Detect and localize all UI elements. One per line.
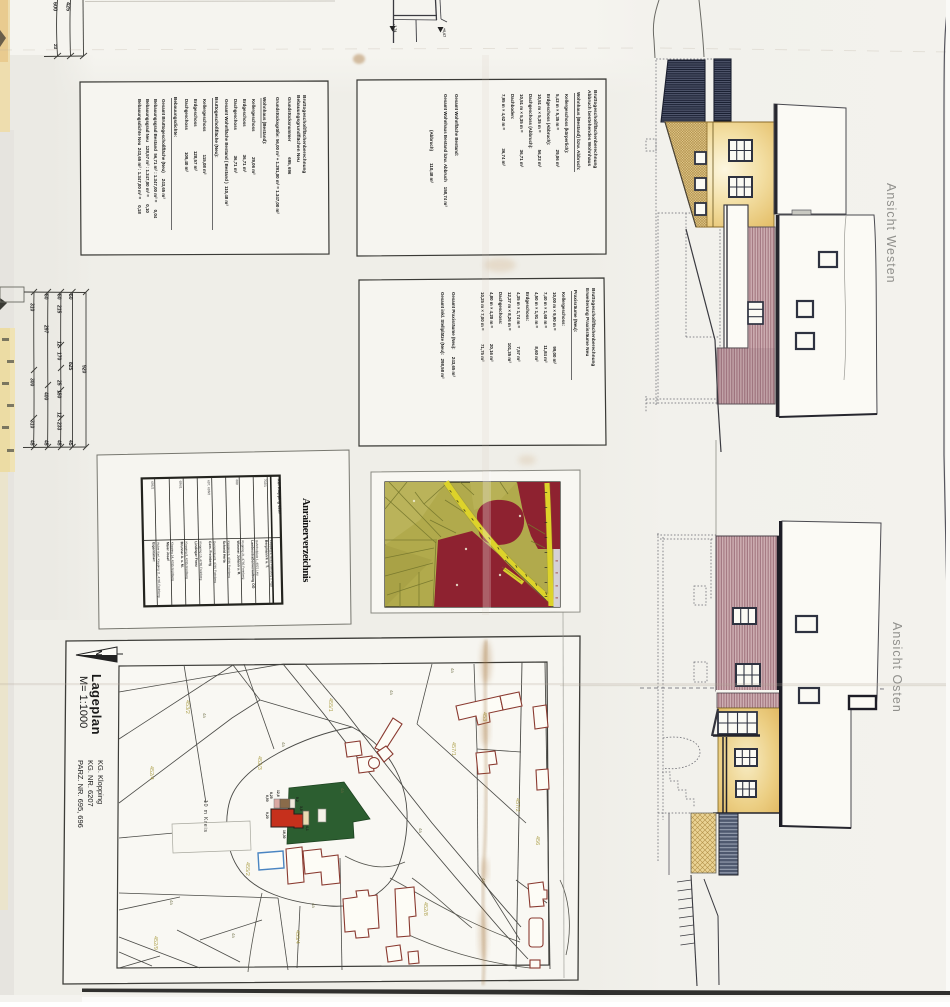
svg-text:297: 297 <box>43 325 49 334</box>
svg-text:455/4: 455/4 <box>294 930 300 944</box>
svg-text:Maier Josef: Maier Josef <box>166 542 170 562</box>
svg-text:Wohnhaus (Bestand) bzw. Abbruc: Wohnhaus (Bestand) bzw. Abbruch: <box>576 92 581 171</box>
svg-text:12: 12 <box>56 341 62 347</box>
svg-text:Dachgeschoss:: Dachgeschoss: <box>498 292 503 325</box>
svg-text:Kellergeschoss (körperlich):: Kellergeschoss (körperlich): <box>564 94 569 154</box>
svg-text:Klopping 21, 4785 Freinberg: Klopping 21, 4785 Freinberg <box>241 540 246 579</box>
svg-text:Klopping 8, 4785 Freinberg: Klopping 8, 4785 Freinberg <box>227 541 232 579</box>
svg-text:KG. NR. 6207: KG. NR. 6207 <box>86 760 95 807</box>
svg-text:Klopping 14, 4785 Freinberg: Klopping 14, 4785 Freinberg <box>170 542 175 581</box>
svg-text:699: 699 <box>235 479 239 485</box>
svg-text:25: 25 <box>56 380 62 386</box>
svg-text:Erdgeschoss:: Erdgeschoss: <box>525 292 530 322</box>
svg-text:Abbruch bestehendes Wohnhaus: Abbruch bestehendes Wohnhaus <box>586 90 592 166</box>
svg-text:452/4: 452/4 <box>148 766 154 780</box>
svg-text:12: 12 <box>56 412 62 418</box>
svg-text:Wimmer Johann u. R.: Wimmer Johann u. R. <box>236 540 241 575</box>
svg-text:Kellergeschoss:: Kellergeschoss: <box>561 292 566 326</box>
svg-text:696/1: 696/1 <box>178 481 182 489</box>
svg-text:Bebauungsgrad Bestand 56,71 m: Bebauungsgrad Bestand 56,71 m² : 1.347,0… <box>153 99 158 219</box>
svg-text:Kellergeschoss: Kellergeschoss 29,06 m² <box>251 99 256 175</box>
svg-text:50: 50 <box>56 294 62 300</box>
svg-text:Bebauungsgrad Neu 128,57 m²: Bebauungsgrad Neu 128,57 m² : 1.347,00 m… <box>145 99 150 213</box>
svg-text:5,43 m × 5,35 m =: 5,43 m × 5,35 m = 29,06 m² <box>555 94 560 168</box>
svg-text:4a: 4a <box>202 713 207 718</box>
svg-text:50: 50 <box>43 294 49 300</box>
svg-text:Brunner A. u. M.: Brunner A. u. M. <box>180 542 185 568</box>
svg-text:Klopping 9, 4785 Freinberg: Klopping 9, 4785 Freinberg <box>184 541 189 579</box>
svg-text:455/1: 455/1 <box>327 698 333 712</box>
svg-text:Bruttogeschoßflächenberechnung: Bruttogeschoßflächenberechnung <box>592 90 598 168</box>
svg-text:9,20: 9,20 <box>265 812 269 819</box>
svg-text:Grundstücksnummer: Grundstücksnummer 695, 696 <box>287 97 292 175</box>
svg-text:7,40 m × 1,60 m =: 7,40 m × 1,60 m = 11,84 m² <box>543 292 548 363</box>
svg-text:KG. Klopping 6207: KG. Klopping 6207 <box>277 479 283 515</box>
svg-text:4a: 4a <box>340 788 345 793</box>
svg-text:N: N <box>94 650 103 656</box>
svg-text:702/1: 702/1 <box>263 479 267 487</box>
svg-text:Bergmann F. u. T.: Bergmann F. u. T. <box>264 540 269 568</box>
svg-text:Eigentümer:: Eigentümer: <box>152 542 156 562</box>
svg-text:Dachgeschoss: Dachgeschoss 36,71 m² <box>233 99 238 174</box>
svg-text:6,50: 6,50 <box>265 795 269 802</box>
svg-text:Erdgeschoss: Erdgeschoss 36,71 m² <box>242 99 247 173</box>
svg-text:10,51 m × 5,35 m =: 10,51 m × 5,35 m = 36,71 m² <box>519 94 524 168</box>
svg-text:10 m Kreis: 10 m Kreis <box>202 800 208 833</box>
svg-text:Klopping 16, 4785 Freinberg: Klopping 16, 4785 Freinberg <box>198 541 203 580</box>
svg-text:456: 456 <box>534 836 540 845</box>
svg-text:Lindinger Franz: Lindinger Franz <box>194 541 199 567</box>
svg-text:Bebauungsgrundflächen Neu: Bebauungsgrundflächen Neu <box>295 95 301 162</box>
svg-text:45: 45 <box>43 440 49 446</box>
svg-text:Dachgeschoss (Abbruch):: Dachgeschoss (Abbruch): <box>528 94 533 149</box>
svg-text:300: 300 <box>29 378 35 387</box>
svg-text:Anrainerverzeichnis: Anrainerverzeichnis <box>300 498 311 582</box>
svg-text:455/2: 455/2 <box>244 862 250 876</box>
svg-text:+0,07: +0,07 <box>442 28 446 37</box>
svg-text:5,2: 5,2 <box>295 797 299 802</box>
svg-text:Bruttogeschoßfläche (Neu):: Bruttogeschoßfläche (Neu): <box>214 97 219 158</box>
svg-text:400: 400 <box>43 392 49 401</box>
svg-text:8,25: 8,25 <box>269 792 273 799</box>
svg-text:Kellergeschoss: Kellergeschoss 115,08 m² <box>202 99 207 175</box>
svg-text:Bahnhofplatz 1, 4021 Linz: Bahnhofplatz 1, 4021 Linz <box>255 540 260 576</box>
svg-text:457/2: 457/2 <box>514 798 520 812</box>
svg-text:10,51 m × 5,35 m =: 10,51 m × 5,35 m = 56,23 m² <box>537 94 542 168</box>
svg-text:Grundstücksgröße: 56,00 m² +: Grundstücksgröße: 56,00 m² + 1.291,00 m²… <box>275 97 280 214</box>
svg-text:4a: 4a <box>231 933 236 938</box>
svg-text:215: 215 <box>56 305 62 314</box>
svg-text:425: 425 <box>65 2 71 11</box>
svg-text:Gesamt Wohnfläche Bestand ( Be: Gesamt Wohnfläche Bestand ( Bestand ) 11… <box>224 99 229 206</box>
svg-text:Ansicht Osten: Ansicht Osten <box>890 622 904 713</box>
svg-text:23: 23 <box>53 44 58 50</box>
svg-text:12,6: 12,6 <box>276 790 280 797</box>
svg-text:Gesamt Wohnhaus Bestand bzw. A: Gesamt Wohnhaus Bestand bzw. Abbruch 158… <box>443 94 448 207</box>
svg-text:16,30: 16,30 <box>282 830 286 839</box>
svg-text:4a: 4a <box>311 903 316 908</box>
svg-text:Erdgeschoss: Erdgeschoss 128,57 m² <box>193 99 198 172</box>
svg-text:4,35 m × 1,74 m =: 4,35 m × 1,74 m = 7,57 m² <box>516 292 521 362</box>
svg-text:50: 50 <box>67 294 73 300</box>
svg-text:Bebauungsdichte Neu 243,65 m²: Bebauungsdichte Neu 243,65 m² : 1.347,00… <box>137 99 142 214</box>
svg-text:920: 920 <box>81 365 87 374</box>
svg-text:Erweiterung Praxisräume Neu: Erweiterung Praxisräume Neu <box>584 288 590 356</box>
svg-text:697, 698/2: 697, 698/2 <box>207 480 211 495</box>
svg-text:45: 45 <box>29 440 35 446</box>
svg-text:Praxisräume (Neu):: Praxisräume (Neu): <box>573 290 578 333</box>
svg-text:170: 170 <box>56 352 62 361</box>
svg-text:233: 233 <box>56 422 62 431</box>
svg-text:Gesamt Wohnfläche Bestand:: Gesamt Wohnfläche Bestand: <box>454 94 459 157</box>
svg-text:10,00 m × 9,90 m =: 10,00 m × 9,90 m = 99,00 m² <box>552 292 557 365</box>
svg-text:(Abbruch) 110,48 m²: (Abbruch) 110,48 m² <box>429 130 434 183</box>
svg-text:45: 45 <box>67 440 73 446</box>
svg-text:825: 825 <box>67 362 73 371</box>
svg-text:4a: 4a <box>281 742 286 747</box>
svg-text:Dachgeschoss: Dachgeschoss 109,40 m² <box>184 99 189 173</box>
svg-text:Gem. Freinberg: Gem. Freinberg <box>208 541 213 566</box>
svg-text:Bruttogeschoßflächenberechnung: Bruttogeschoßflächenberechnung <box>301 95 307 173</box>
svg-text:4,50 m × 1,91 m =: 4,50 m × 1,91 m = 8,60 m² <box>534 292 539 362</box>
svg-text:4a: 4a <box>418 828 423 833</box>
svg-text:4a: 4a <box>389 690 394 695</box>
svg-text:12,27 m × 8,26 m = 10: 12,27 m × 8,26 m = 101,35 m² <box>507 292 512 363</box>
svg-text:457/1: 457/1 <box>450 742 456 756</box>
svg-text:Erdgeschoss (Abbruch):: Erdgeschoss (Abbruch): <box>546 94 551 146</box>
svg-text:600: 600 <box>52 2 58 11</box>
svg-text:Bebauungsdichte:: Bebauungsdichte: <box>173 97 178 138</box>
svg-text:7,95 m × 4,62 m =: 7,95 m × 4,62 m = 36,74 m² <box>501 94 506 167</box>
svg-text:-1,74: -1,74 <box>393 24 397 32</box>
svg-text:Gesamt Bruttogeschoßfläche (Ne: Gesamt Bruttogeschoßfläche (Neu) 243,65 … <box>161 99 166 199</box>
svg-text:Dachboden:: Dachboden: <box>510 94 515 120</box>
svg-text:PARZ. NR. 695, 696: PARZ. NR. 695, 696 <box>76 760 85 828</box>
svg-text:4a: 4a <box>169 900 174 905</box>
svg-text:453/2: 453/2 <box>184 700 190 714</box>
svg-text:KG. Klopping: KG. Klopping <box>96 760 105 804</box>
svg-text:452/8: 452/8 <box>422 902 428 916</box>
svg-text:Ansicht Westen: Ansicht Westen <box>884 183 898 284</box>
svg-text:150: 150 <box>56 390 62 399</box>
svg-text:452/3: 452/3 <box>256 756 262 770</box>
svg-text:Bruttogeschoßflächenberechnung: Bruttogeschoßflächenberechnung <box>590 288 596 366</box>
svg-text:4,1: 4,1 <box>305 826 309 831</box>
svg-text:Schmid Herta: Schmid Herta <box>222 541 226 563</box>
svg-text:310: 310 <box>29 303 35 312</box>
svg-text:452/9: 452/9 <box>152 936 158 950</box>
svg-text:695/2: 695/2 <box>150 481 154 489</box>
svg-text:3,5: 3,5 <box>299 806 303 811</box>
svg-text:45: 45 <box>56 440 62 446</box>
svg-text:Wohnhaus (Bestand):: Wohnhaus (Bestand): <box>262 97 267 145</box>
svg-text:4,80 m × 4,20 m =: 4,80 m × 4,20 m = 20,16 m² <box>489 292 494 362</box>
svg-text:Gesamt Praxisräume (Neu):: Gesamt Praxisräume (Neu): 243,65 m² <box>451 292 456 377</box>
svg-text:Gesamt inkl. Stellplätze (Neu): Gesamt inkl. Stellplätze (Neu): 298,58 m… <box>440 292 445 379</box>
svg-text:310: 310 <box>29 420 35 429</box>
svg-text:4a: 4a <box>450 668 455 673</box>
